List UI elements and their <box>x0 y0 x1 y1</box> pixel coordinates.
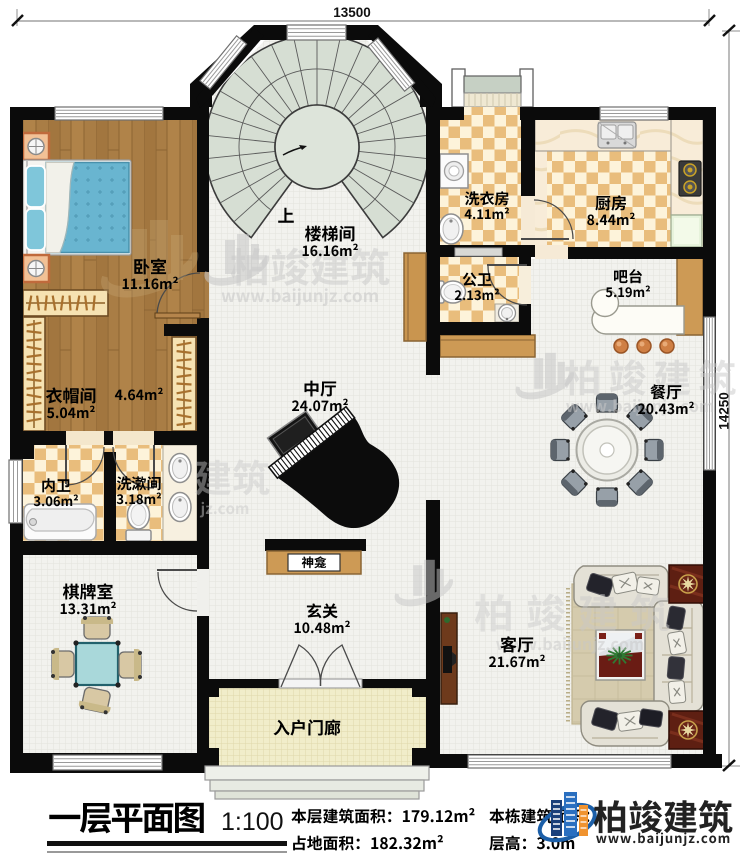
svg-text:13500: 13500 <box>333 5 371 20</box>
svg-text:1:100: 1:100 <box>221 808 284 836</box>
svg-text:14250: 14250 <box>717 392 732 430</box>
